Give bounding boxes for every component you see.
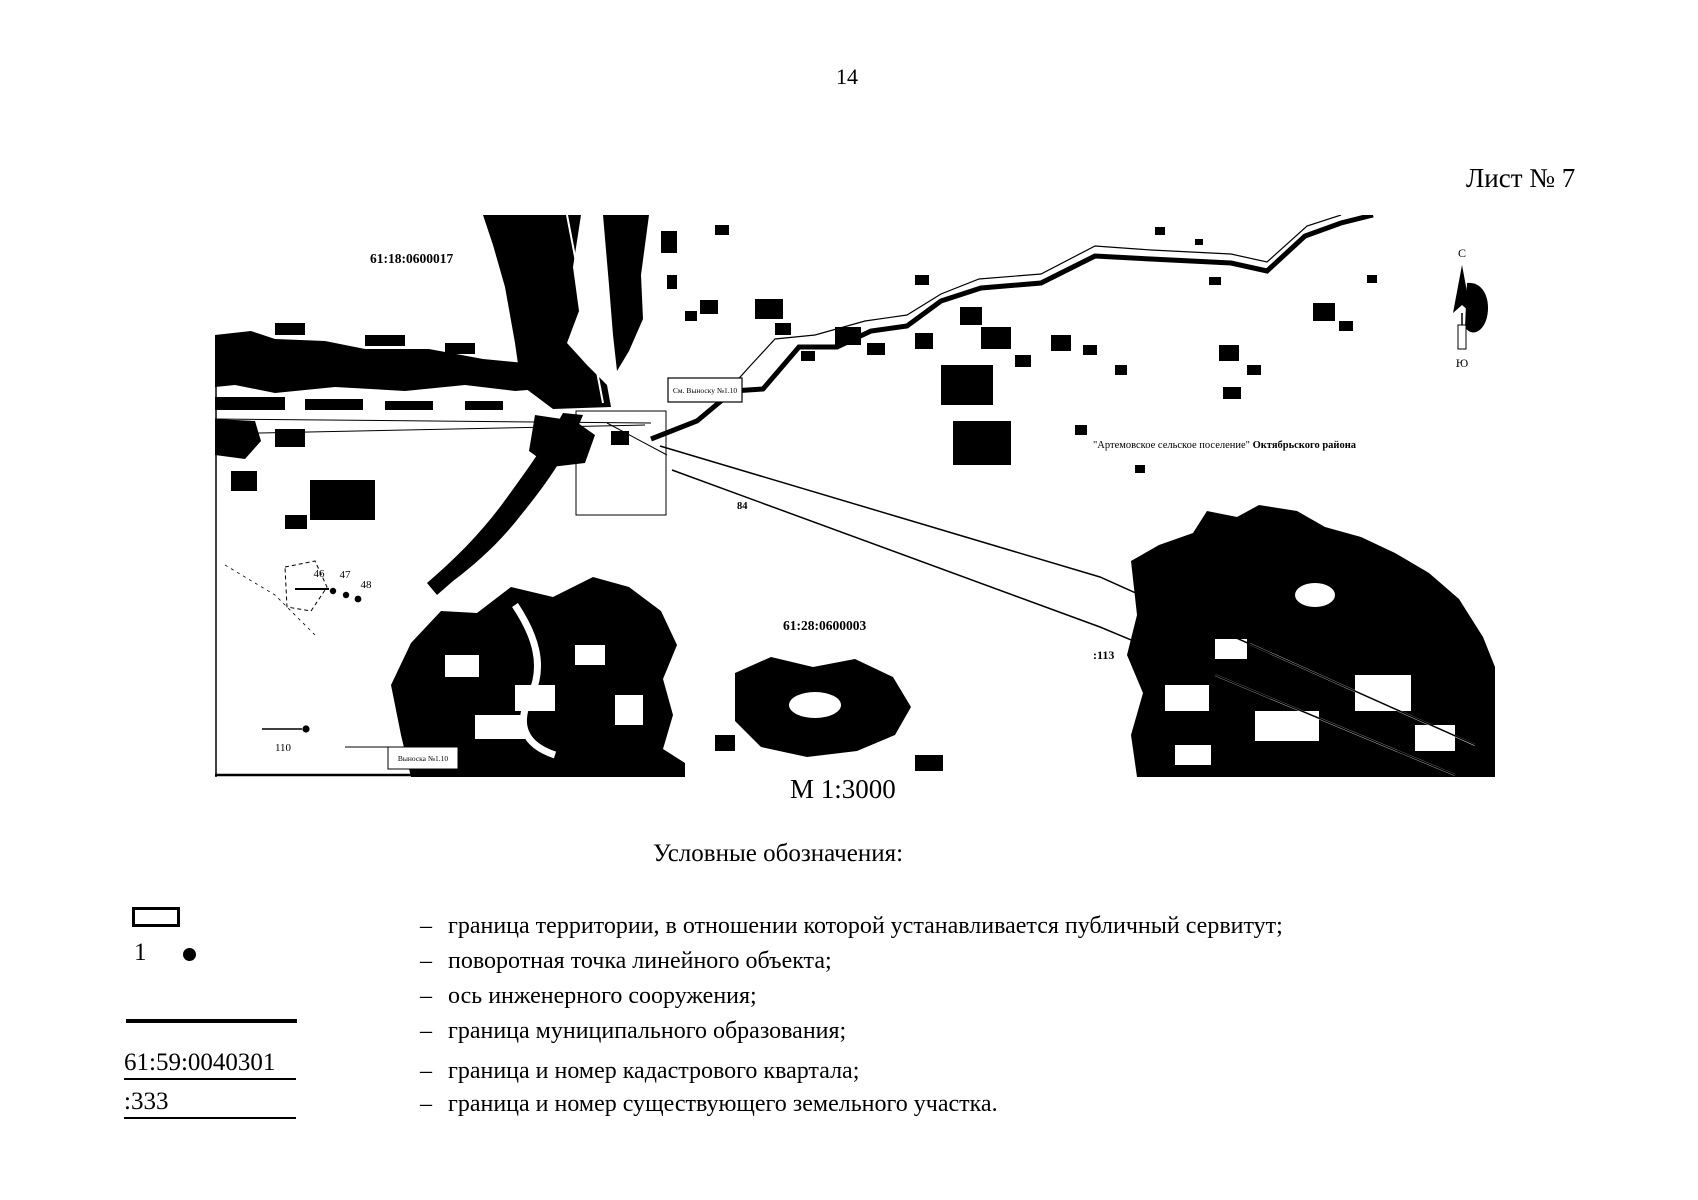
legend-symbol-cadastral-quarter-number: 61:59:0040301 [124, 1049, 296, 1080]
settlement-label: "Артемовское сельское поселение" Октябрь… [1093, 440, 1357, 451]
legend-item-text: граница муниципального образования; [448, 1018, 846, 1044]
legend-symbol-point-number: 1 [134, 939, 147, 967]
point-47-label: 47 [340, 569, 352, 581]
map-image: 61:18:0600017 61:28:0600003 :113 84 110 … [215, 215, 1495, 777]
compass: С Ю [1453, 246, 1488, 370]
page-number: 14 [836, 64, 858, 90]
legend-dash: – [420, 1091, 448, 1118]
legend-symbol-point-dot [183, 948, 196, 961]
legend-item-municipal-boundary: –граница муниципального образования; [420, 1018, 846, 1045]
sheet-number-label: Лист № 7 [1466, 163, 1575, 194]
cadastral-quarter-label-top: 61:18:0600017 [370, 251, 453, 266]
settlement-name: "Артемовское сельское поселение" [1093, 440, 1250, 451]
legend-symbol-servitude-boundary [132, 907, 180, 927]
legend-item-servitude-boundary: –граница территории, в отношении которой… [420, 913, 1283, 940]
legend-item-cadastral-quarter: –граница и номер кадастрового квартала; [420, 1058, 859, 1085]
legend-title: Условные обозначения: [653, 840, 903, 868]
map-dark-areas [215, 215, 1495, 777]
point-84-label: 84 [737, 501, 748, 512]
parcel-113-label: :113 [1093, 648, 1114, 662]
legend-item-engineering-axis: –ось инженерного сооружения; [420, 983, 757, 1010]
legend-dash: – [420, 1018, 448, 1045]
point-46-label: 46 [314, 568, 326, 580]
legend-item-text: граница и номер кадастрового квартала; [448, 1058, 859, 1084]
cadastral-quarter-label-bottom: 61:28:0600003 [783, 618, 866, 633]
legend-dash: – [420, 1058, 448, 1085]
engineering-axis-line [651, 215, 1373, 439]
point-110-junction-label: 110 [613, 434, 627, 445]
district-name: Октябрьского района [1250, 440, 1357, 451]
legend-symbol-axis-line [126, 1019, 297, 1023]
callout-title-box: Выноска №1.10 [345, 747, 458, 769]
compass-north-label: С [1458, 246, 1466, 260]
callout-title-text: Выноска №1.10 [398, 754, 449, 763]
legend-item-text: граница территории, в отношении которой … [448, 913, 1283, 939]
cadastral-map: 61:18:0600017 61:28:0600003 :113 84 110 … [215, 215, 1495, 777]
callout-reference-box: См. Выноску №1.10 [668, 378, 742, 402]
municipal-boundary-line [715, 215, 1341, 405]
point-110-left-label: 110 [275, 742, 292, 754]
callout-reference-text: См. Выноску №1.10 [673, 386, 738, 395]
legend-item-text: поворотная точка линейного объекта; [448, 948, 832, 974]
legend-dash: – [420, 983, 448, 1010]
legend-symbol-parcel-number: :333 [124, 1088, 296, 1119]
point-48-label: 48 [361, 579, 373, 591]
compass-south-label: Ю [1456, 356, 1468, 370]
legend-item-text: ось инженерного сооружения; [448, 983, 757, 1009]
legend-item-text: граница и номер существующего земельного… [448, 1091, 998, 1117]
legend-item-existing-parcel: –граница и номер существующего земельног… [420, 1091, 998, 1118]
document-page: { "page": { "number": "14", "sheet_label… [0, 0, 1698, 1200]
legend-dash: – [420, 948, 448, 975]
legend-item-turn-point: –поворотная точка линейного объекта; [420, 948, 832, 975]
map-scale-label: М 1:3000 [790, 774, 896, 805]
legend-dash: – [420, 913, 448, 940]
